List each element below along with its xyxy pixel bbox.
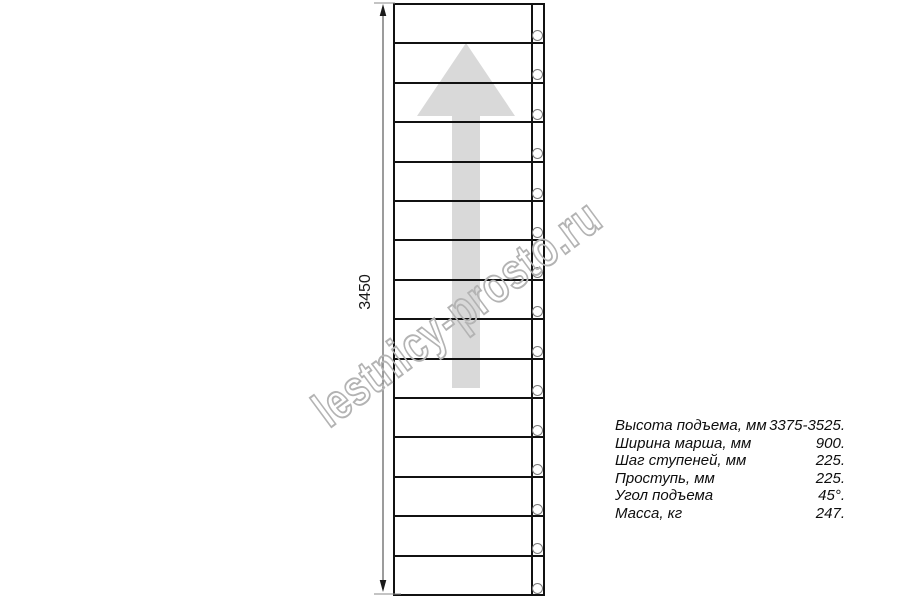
spec-value: 225.: [816, 452, 845, 470]
spec-row: Ширина марша, мм900.: [615, 435, 845, 453]
spec-value: 225.: [816, 470, 845, 488]
baluster-circle: [532, 69, 543, 80]
baluster-circle: [532, 267, 543, 278]
specs-table: Высота подъема, мм3375-3525.Ширина марша…: [615, 417, 845, 522]
spec-value: 247.: [816, 505, 845, 523]
step-tread: [393, 515, 545, 556]
step-tread: [393, 239, 545, 280]
step-tread: [393, 476, 545, 517]
baluster-circle: [532, 583, 543, 594]
spec-row: Высота подъема, мм3375-3525.: [615, 417, 845, 435]
spec-row: Шаг ступеней, мм225.: [615, 452, 845, 470]
spec-row: Проступь, мм225.: [615, 470, 845, 488]
staircase-plan: [393, 3, 545, 596]
spec-row: Масса, кг247.: [615, 505, 845, 523]
spec-label: Высота подъема, мм: [615, 417, 767, 435]
spec-label: Угол подъема: [615, 487, 713, 505]
dimension-value: 3450: [357, 274, 375, 310]
spec-value: 45°.: [818, 487, 845, 505]
dimension-arrowhead-down-icon: [380, 580, 387, 592]
step-tread: [393, 358, 545, 399]
step-tread: [393, 555, 545, 596]
spec-row: Угол подъема45°.: [615, 487, 845, 505]
baluster-circle: [532, 425, 543, 436]
baluster-circle: [532, 109, 543, 120]
spec-value: 3375-3525.: [769, 417, 845, 435]
baluster-circle: [532, 504, 543, 515]
step-tread: [393, 3, 545, 44]
spec-label: Шаг ступеней, мм: [615, 452, 746, 470]
dimension-arrowhead-up-icon: [380, 4, 387, 16]
step-tread: [393, 82, 545, 123]
step-tread: [393, 397, 545, 438]
spec-label: Ширина марша, мм: [615, 435, 751, 453]
step-tread: [393, 121, 545, 162]
step-tread: [393, 42, 545, 83]
spec-label: Масса, кг: [615, 505, 682, 523]
step-tread: [393, 436, 545, 477]
drawing-canvas: lestnicy-prosto.ru 3450 Высота подъема, …: [0, 0, 900, 600]
step-tread: [393, 200, 545, 241]
baluster-circle: [532, 30, 543, 41]
steps-column: [393, 3, 545, 596]
step-tread: [393, 161, 545, 202]
spec-value: 900.: [816, 435, 845, 453]
baluster-circle: [532, 188, 543, 199]
step-tread: [393, 318, 545, 359]
baluster-circle: [532, 346, 543, 357]
step-tread: [393, 279, 545, 320]
spec-label: Проступь, мм: [615, 470, 715, 488]
